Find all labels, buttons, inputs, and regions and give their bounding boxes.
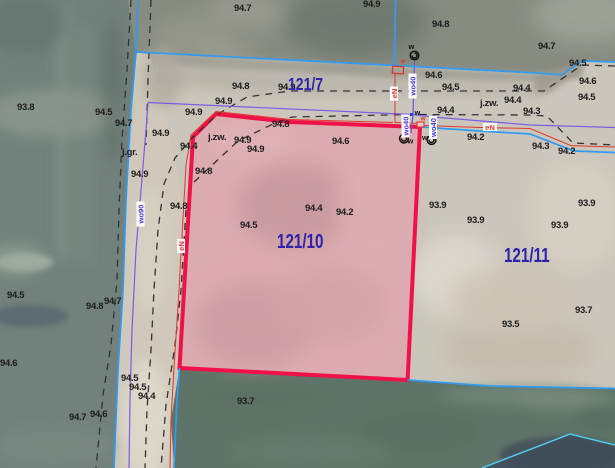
svg-text:94.9: 94.9	[247, 144, 264, 155]
svg-text:94.8: 94.8	[232, 81, 249, 92]
svg-text:121/11: 121/11	[504, 244, 550, 267]
svg-text:e: e	[401, 59, 405, 66]
svg-text:94.8: 94.8	[86, 301, 103, 312]
svg-text:94.7: 94.7	[538, 41, 555, 52]
svg-text:94.4: 94.4	[513, 83, 531, 94]
svg-text:eN: eN	[390, 89, 399, 99]
svg-text:94.6: 94.6	[90, 409, 107, 420]
svg-text:94.8: 94.8	[195, 166, 212, 177]
svg-text:121/10: 121/10	[277, 230, 324, 253]
svg-text:94.4: 94.4	[437, 105, 455, 116]
svg-text:93.8: 93.8	[17, 102, 34, 113]
svg-text:93.9: 93.9	[467, 215, 484, 226]
svg-text:94.6: 94.6	[579, 76, 596, 87]
svg-text:94.8: 94.8	[432, 19, 449, 30]
svg-text:93.5: 93.5	[502, 319, 520, 330]
svg-text:w: w	[421, 133, 428, 142]
svg-text:94.6: 94.6	[332, 136, 349, 147]
svg-text:94.4: 94.4	[138, 391, 156, 402]
svg-text:94.4: 94.4	[180, 141, 198, 152]
svg-text:eN: eN	[485, 123, 495, 132]
svg-text:94.5: 94.5	[95, 107, 113, 118]
svg-text:94.5: 94.5	[240, 220, 258, 231]
svg-text:wo90: wo90	[136, 205, 145, 225]
svg-text:94.9: 94.9	[215, 96, 232, 107]
svg-text:94.5: 94.5	[7, 290, 25, 301]
svg-text:94.9: 94.9	[152, 128, 169, 139]
svg-text:94.2: 94.2	[467, 132, 484, 143]
svg-text:94.9: 94.9	[363, 0, 380, 10]
svg-text:94.8: 94.8	[170, 201, 187, 212]
svg-text:94.3: 94.3	[523, 106, 540, 117]
svg-text:94.6: 94.6	[425, 70, 442, 81]
svg-text:w: w	[408, 42, 415, 51]
svg-text:94.6: 94.6	[0, 358, 17, 369]
svg-text:94.3: 94.3	[532, 141, 549, 152]
svg-text:94.4: 94.4	[504, 95, 522, 106]
svg-text:94.7: 94.7	[69, 412, 86, 423]
svg-text:93.7: 93.7	[237, 396, 254, 407]
svg-text:93.9: 93.9	[578, 198, 595, 209]
svg-text:wo40: wo40	[408, 77, 417, 97]
svg-text:94.4: 94.4	[305, 203, 323, 214]
svg-text:94.7: 94.7	[234, 3, 251, 14]
svg-text:w: w	[420, 116, 427, 123]
svg-text:94.2: 94.2	[558, 146, 575, 157]
svg-text:wo40: wo40	[401, 117, 410, 137]
svg-text:94.5: 94.5	[578, 92, 596, 103]
svg-text:94.7: 94.7	[115, 118, 132, 129]
svg-text:94.5: 94.5	[569, 58, 587, 69]
svg-text:j.zw.: j.zw.	[207, 132, 226, 143]
svg-text:93.9: 93.9	[551, 220, 568, 231]
svg-text:94.9: 94.9	[131, 169, 148, 180]
svg-text:94.9: 94.9	[185, 107, 202, 118]
svg-text:w: w	[414, 108, 421, 117]
svg-text:94.8: 94.8	[272, 119, 289, 130]
svg-text:j.zw.: j.zw.	[479, 98, 498, 109]
svg-text:eN: eN	[177, 241, 186, 251]
svg-text:94.5: 94.5	[442, 82, 460, 93]
svg-text:wo40: wo40	[429, 118, 438, 138]
svg-text:93.9: 93.9	[429, 200, 446, 211]
svg-text:121/7: 121/7	[288, 74, 323, 94]
svg-text:94.7: 94.7	[104, 296, 121, 307]
svg-text:93.7: 93.7	[575, 305, 592, 316]
svg-text:j.gr.: j.gr.	[121, 147, 137, 158]
svg-text:w: w	[407, 137, 414, 146]
svg-text:94.2: 94.2	[336, 207, 353, 218]
